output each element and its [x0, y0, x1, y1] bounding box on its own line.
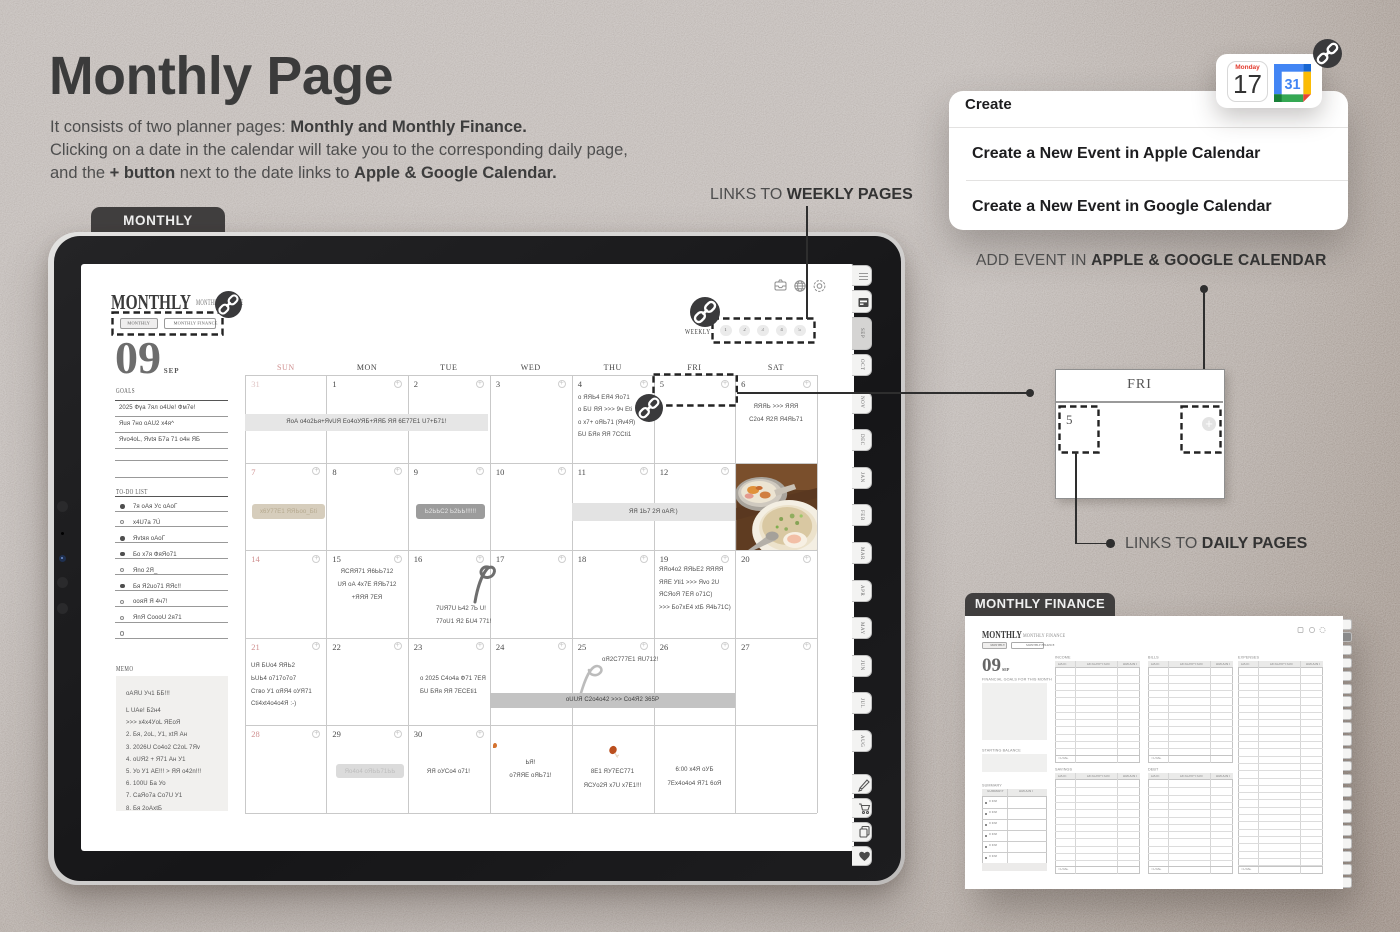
svg-text:31: 31	[1285, 77, 1301, 93]
